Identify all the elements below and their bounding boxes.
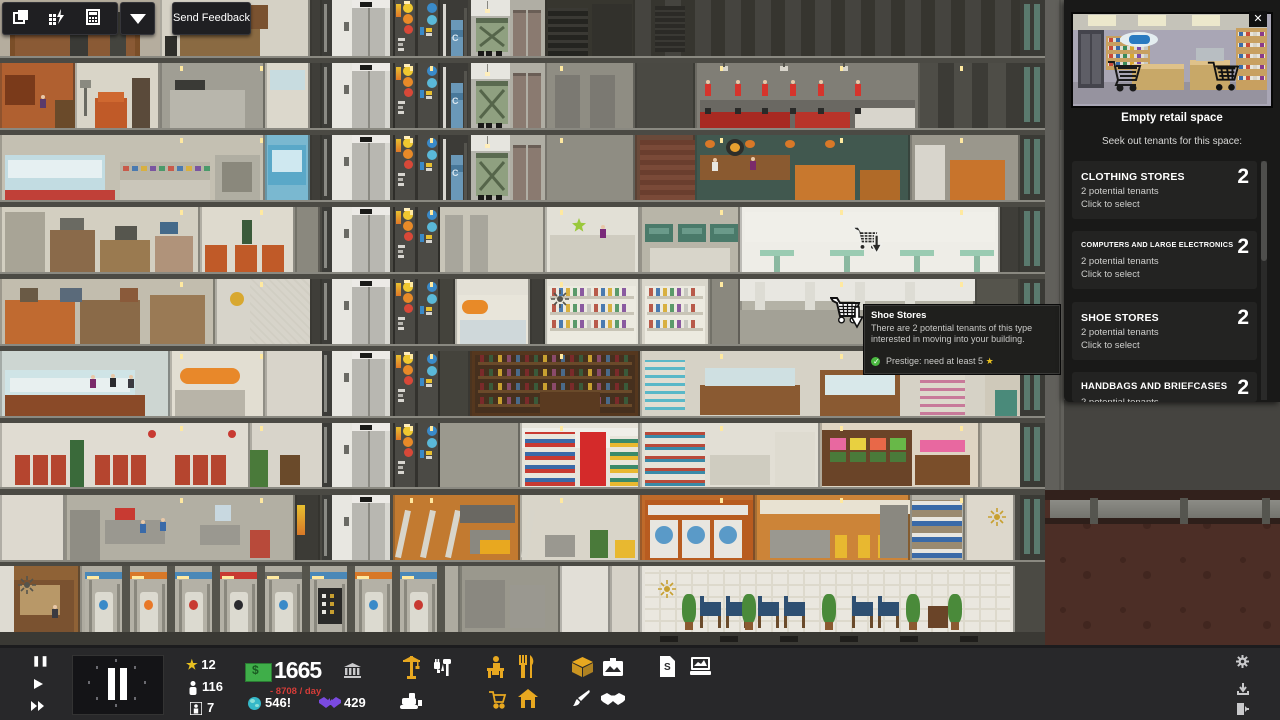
svg-text:S: S [664,662,671,673]
